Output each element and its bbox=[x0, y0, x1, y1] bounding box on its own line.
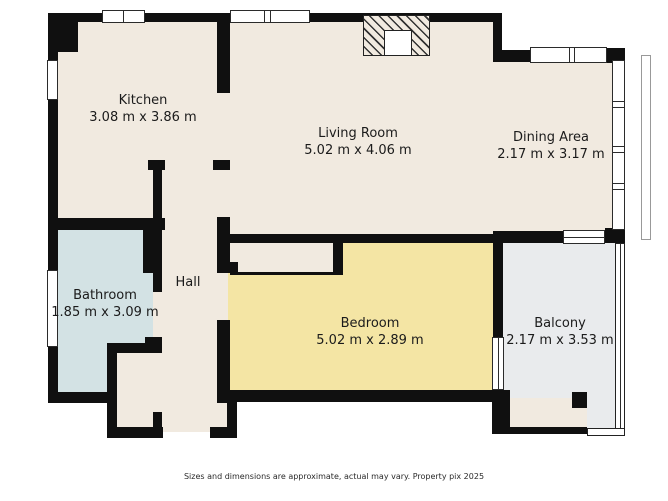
wall-bottom-a bbox=[107, 427, 163, 438]
window-mullion bbox=[613, 189, 624, 190]
window-mullion bbox=[564, 237, 604, 238]
window-mullion bbox=[264, 11, 265, 22]
room-label-dining-area: Dining Area 2.17 m x 3.17 m bbox=[471, 129, 631, 163]
room-name: Hall bbox=[148, 274, 228, 291]
window-mullion bbox=[123, 11, 124, 22]
room-dimensions: 2.17 m x 3.53 m bbox=[480, 332, 640, 349]
window-mullion bbox=[613, 183, 624, 184]
fireplace-flue bbox=[384, 30, 412, 56]
floorplan-canvas: Kitchen 3.08 m x 3.86 m Living Room 5.02… bbox=[0, 0, 668, 501]
room-name: Dining Area bbox=[471, 129, 631, 146]
room-dimensions: 1.85 m x 3.09 m bbox=[25, 304, 185, 321]
wall-dining-corner-br bbox=[605, 228, 625, 243]
room-dimensions: 3.08 m x 3.86 m bbox=[63, 109, 223, 126]
window-mullion bbox=[613, 107, 624, 108]
room-name: Balcony bbox=[480, 315, 640, 332]
window-living-top bbox=[230, 10, 310, 23]
window-mullion bbox=[569, 48, 570, 62]
window-dining-balcony bbox=[563, 230, 605, 244]
wall-closet-right bbox=[333, 240, 343, 275]
room-label-living-room: Living Room 5.02 m x 4.06 m bbox=[278, 125, 438, 159]
wall-hall-bottom-right bbox=[227, 402, 237, 438]
room-label-hall: Hall bbox=[148, 274, 228, 291]
wall-bedroom-bottom bbox=[217, 390, 510, 402]
window-dining-top bbox=[530, 47, 607, 63]
window-kitchen-top bbox=[102, 10, 145, 23]
wall-storage-bottom bbox=[492, 427, 587, 434]
room-name: Kitchen bbox=[63, 92, 223, 109]
room-name: Bedroom bbox=[290, 315, 450, 332]
dining-exterior-sill bbox=[641, 55, 651, 240]
room-label-bathroom: Bathroom 1.85 m x 3.09 m bbox=[25, 287, 185, 321]
window-mullion bbox=[613, 101, 624, 102]
room-dimensions: 5.02 m x 2.89 m bbox=[290, 332, 450, 349]
wall-bathroom-right bbox=[143, 230, 162, 273]
window-kitchen-left bbox=[47, 60, 58, 100]
wall-living-bottom bbox=[217, 234, 512, 243]
wall-storage-stub bbox=[572, 392, 587, 408]
bedroom-closet-floor bbox=[230, 243, 333, 272]
room-label-balcony: Balcony 2.17 m x 3.53 m bbox=[480, 315, 640, 349]
wall-kitchen-living bbox=[217, 13, 230, 93]
room-dimensions: 2.17 m x 3.17 m bbox=[471, 146, 631, 163]
room-label-kitchen: Kitchen 3.08 m x 3.86 m bbox=[63, 92, 223, 126]
wall-closet-bottom-line bbox=[230, 272, 343, 275]
wall-hall-stub-right bbox=[213, 160, 230, 170]
window-mullion bbox=[574, 48, 575, 62]
disclaimer-text: Sizes and dimensions are approximate, ac… bbox=[0, 472, 668, 481]
room-name: Living Room bbox=[278, 125, 438, 142]
wall-kitchen-bottom bbox=[48, 218, 165, 230]
window-mullion bbox=[270, 11, 271, 22]
balcony-railing-bottom bbox=[587, 428, 625, 436]
room-dimensions: 5.02 m x 4.06 m bbox=[278, 142, 438, 159]
room-label-bedroom: Bedroom 5.02 m x 2.89 m bbox=[290, 315, 450, 349]
